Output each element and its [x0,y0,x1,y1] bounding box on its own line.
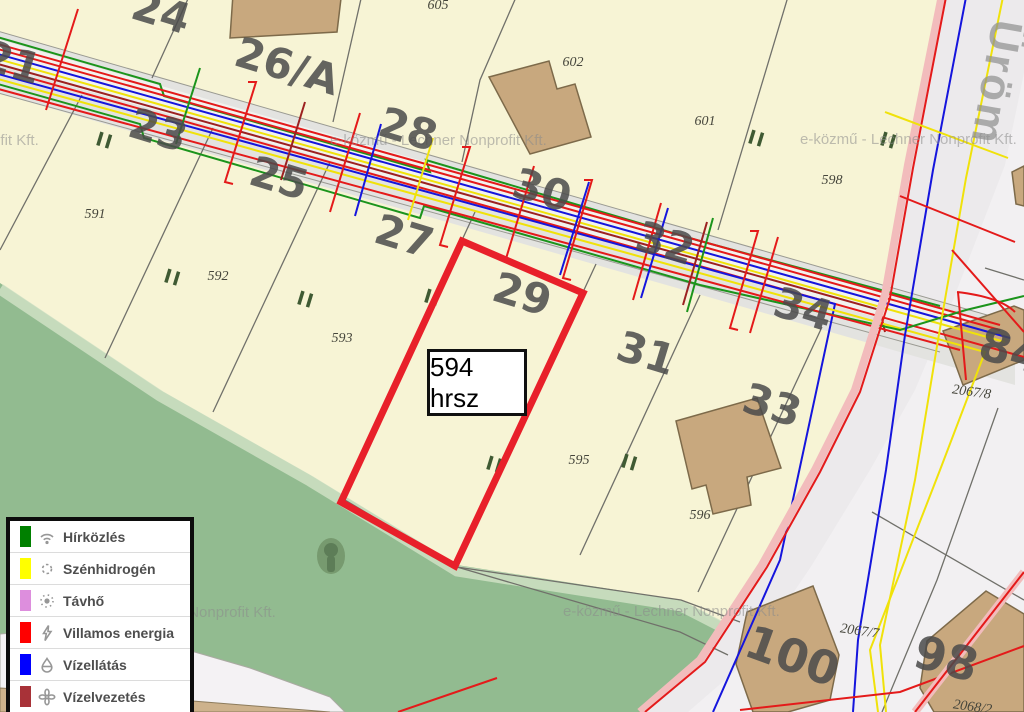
legend-swatch [20,686,31,707]
legend-row-villamos: Villamos energia [10,616,190,648]
legend-label: Hírközlés [63,529,125,545]
legend-label: Vízellátás [63,657,127,673]
legend-label: Vízelvezetés [63,689,146,705]
lightning-icon [38,624,56,642]
parcel-number: 593 [332,331,353,346]
parcel-number: 596 [690,508,711,523]
parcel-number: 592 [208,269,229,284]
legend-row-tavho: Távhő [10,584,190,616]
parcel-number: 602 [563,55,584,70]
tree-icon [317,538,345,574]
watermark-text: e-közmű - Lechner Nonprofit Kft. [0,132,39,149]
legend-row-hirkozles: Hírközlés [10,521,190,552]
legend-swatch [20,622,31,643]
watermark-text: e-közmű - Lechner Nonprofit Kft. [330,132,547,149]
sun-icon [38,592,56,610]
legend-row-vizelvezetes: Vízelvezetés [10,680,190,712]
watermark-text: e-közmű - Lechner Nonprofit Kft. [563,603,780,620]
parcel-number: 601 [695,114,716,129]
legend-swatch [20,526,31,547]
parcel-number: 591 [85,207,106,222]
gas-sun-icon [38,560,56,578]
legend-panel: Hírközlés Szénhidrogén Távhő Villamos en… [6,517,194,712]
legend-row-szenhidrogen: Szénhidrogén [10,552,190,584]
parcel-number: 605 [428,0,449,13]
legend-swatch [20,590,31,611]
highlight-parcel-label: 594 hrsz [427,349,527,416]
legend-label: Szénhidrogén [63,561,156,577]
legend-label: Távhő [63,593,104,609]
water-drop-icon [38,656,56,674]
highlight-parcel-label-text: 594 hrsz [430,352,524,414]
parcel-number: 595 [569,453,590,468]
legend-swatch [20,558,31,579]
wifi-icon [38,528,56,546]
legend-row-vizellatas: Vízellátás [10,648,190,680]
fan-icon [38,688,56,706]
legend-label: Villamos energia [63,625,174,641]
parcel-number: 598 [822,173,843,188]
map-viewport: e-közmű - Lechner Nonprofit Kft. e-közmű… [0,0,1024,712]
legend-swatch [20,654,31,675]
